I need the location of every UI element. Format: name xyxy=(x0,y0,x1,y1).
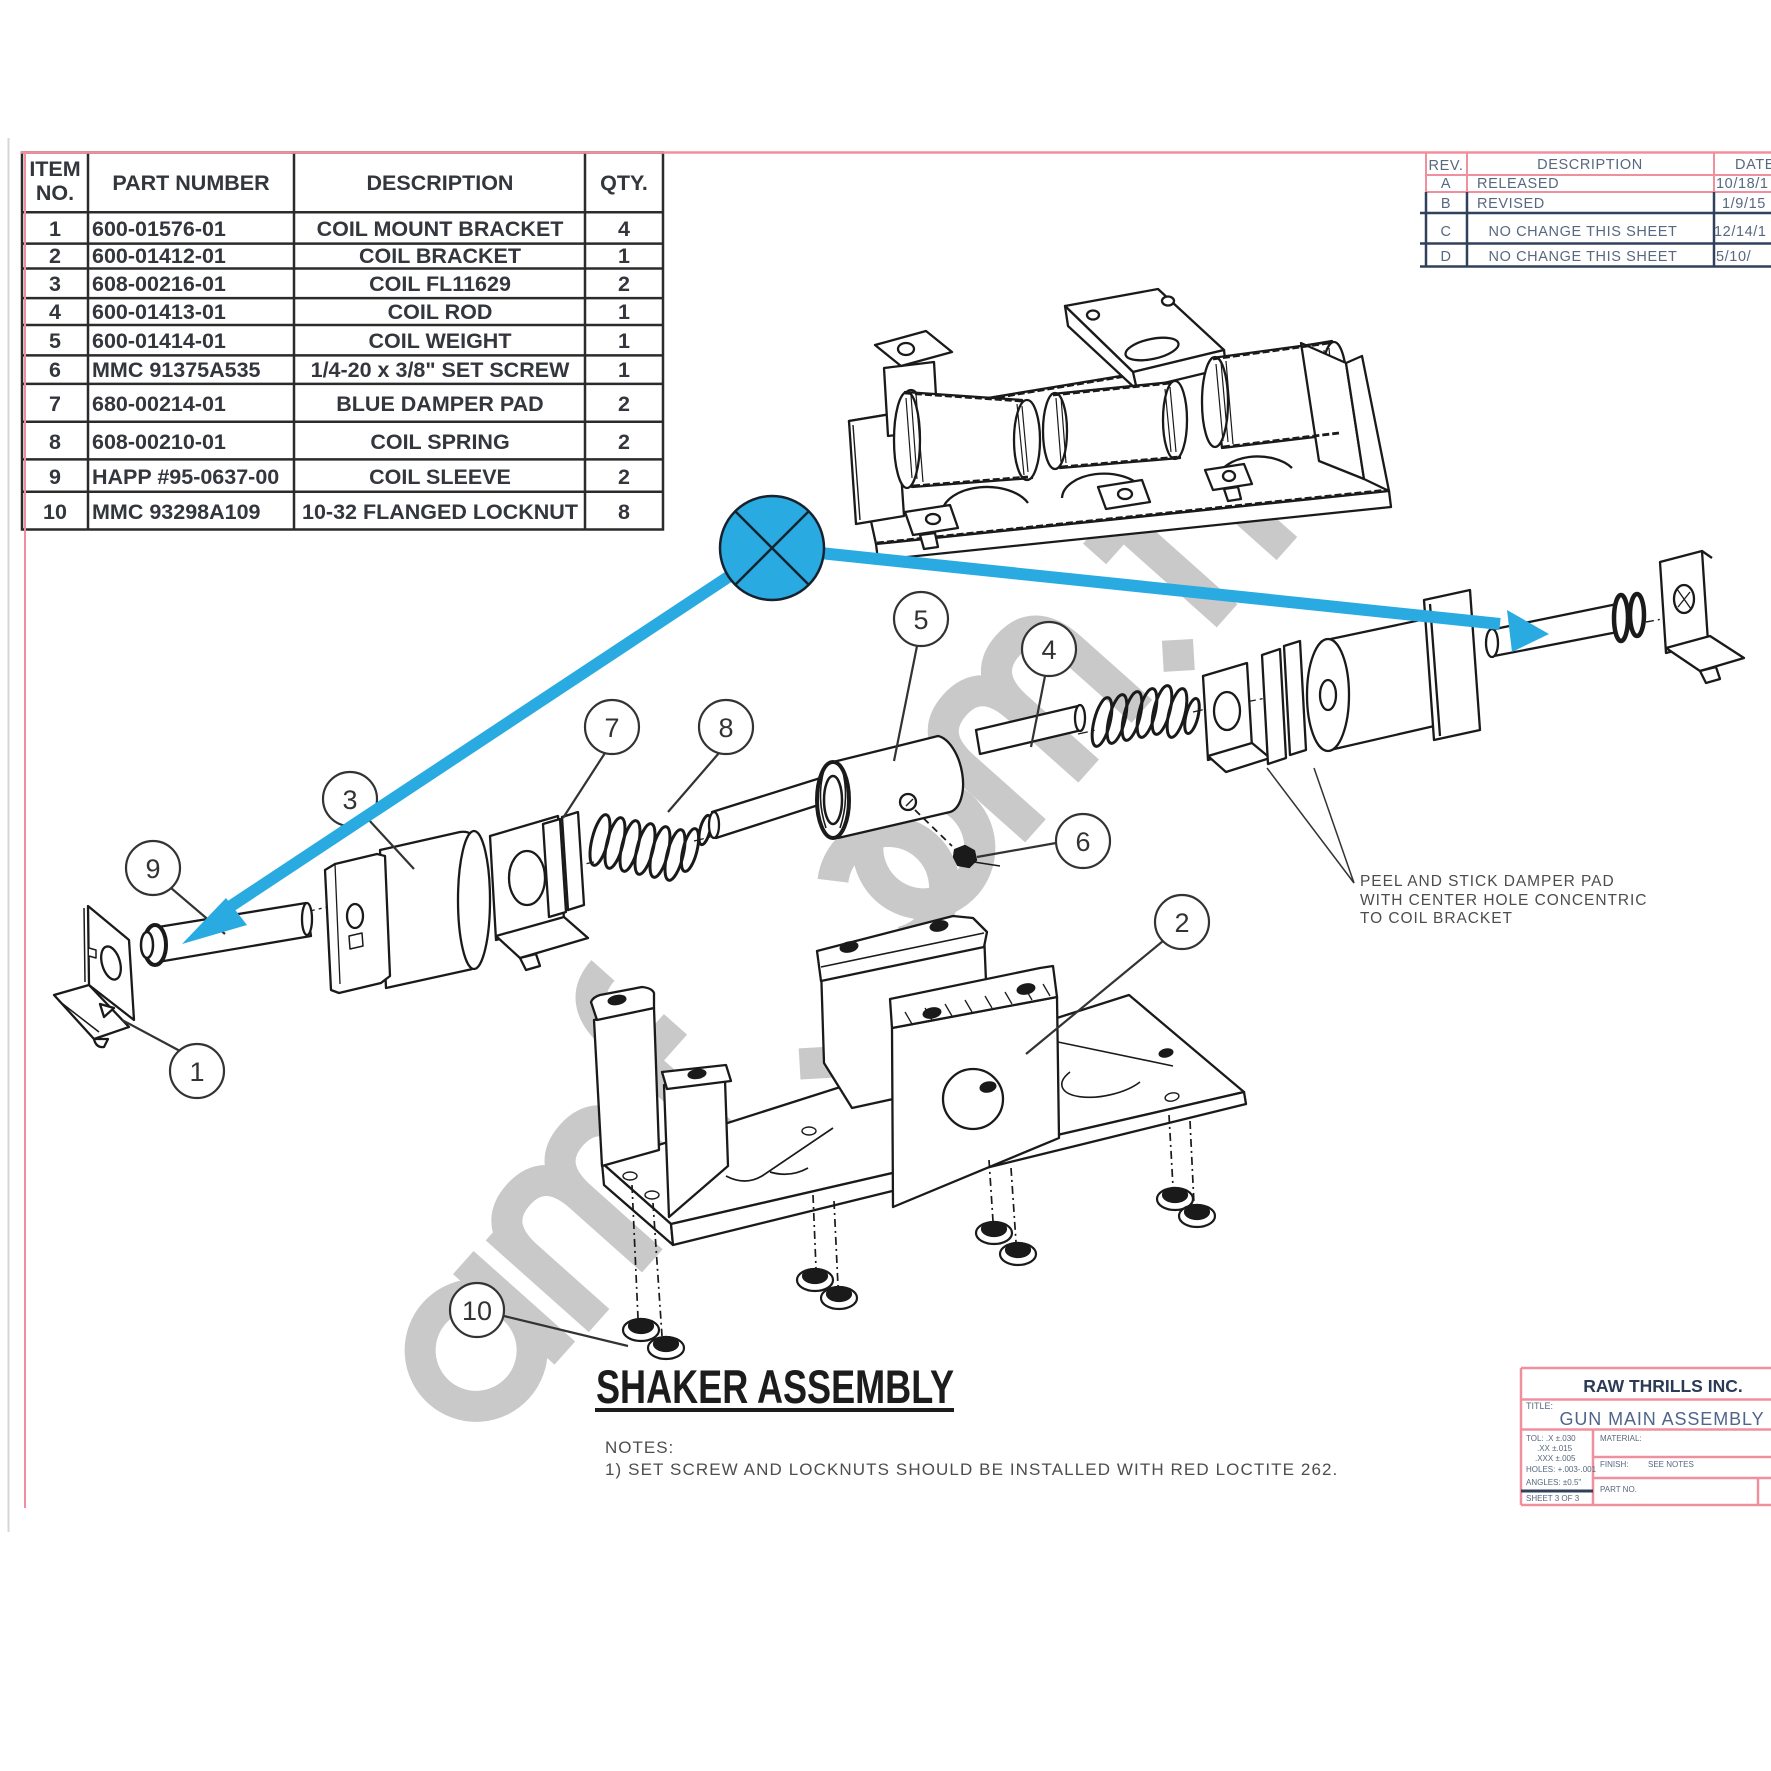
svg-text:COIL WEIGHT: COIL WEIGHT xyxy=(369,329,512,353)
svg-text:COIL ROD: COIL ROD xyxy=(388,300,493,324)
svg-text:8: 8 xyxy=(718,713,733,743)
svg-text:2: 2 xyxy=(618,430,630,454)
svg-text:608-00216-01: 608-00216-01 xyxy=(92,272,226,296)
svg-text:4: 4 xyxy=(49,300,61,324)
svg-text:RELEASED: RELEASED xyxy=(1477,176,1559,192)
svg-text:6: 6 xyxy=(1075,827,1090,857)
svg-text:600-01413-01: 600-01413-01 xyxy=(92,300,226,324)
svg-text:.XXX ±.005: .XXX ±.005 xyxy=(1535,1454,1576,1463)
svg-text:10/18/1: 10/18/1 xyxy=(1716,176,1769,192)
svg-text:HOLES: +.003-.001: HOLES: +.003-.001 xyxy=(1526,1465,1597,1474)
svg-text:2: 2 xyxy=(618,392,630,416)
svg-text:COIL SLEEVE: COIL SLEEVE xyxy=(369,465,511,489)
svg-text:MMC 93298A109: MMC 93298A109 xyxy=(92,500,261,524)
svg-text:2: 2 xyxy=(618,465,630,489)
svg-text:3: 3 xyxy=(342,785,357,815)
svg-text:SHAKER ASSEMBLY: SHAKER ASSEMBLY xyxy=(596,1360,954,1413)
svg-text:WITH CENTER HOLE CONCENTRIC: WITH CENTER HOLE CONCENTRIC xyxy=(1360,892,1647,909)
svg-text:NO CHANGE THIS SHEET: NO CHANGE THIS SHEET xyxy=(1489,224,1678,240)
svg-text:7: 7 xyxy=(49,392,61,416)
svg-text:2: 2 xyxy=(49,244,61,268)
svg-text:B: B xyxy=(1441,196,1451,212)
svg-text:4: 4 xyxy=(618,217,630,241)
svg-text:DESCRIPTION: DESCRIPTION xyxy=(1537,157,1643,173)
svg-text:5: 5 xyxy=(49,329,61,353)
svg-text:COIL SPRING: COIL SPRING xyxy=(370,430,509,454)
svg-text:5: 5 xyxy=(913,605,928,635)
svg-text:6: 6 xyxy=(49,358,61,382)
svg-text:COIL FL11629: COIL FL11629 xyxy=(369,272,511,296)
svg-text:2: 2 xyxy=(1174,908,1189,938)
svg-text:600-01412-01: 600-01412-01 xyxy=(92,244,226,268)
svg-text:NO.: NO. xyxy=(36,181,74,205)
svg-text:HAPP #95-0637-00: HAPP #95-0637-00 xyxy=(92,465,279,489)
svg-text:.XX ±.015: .XX ±.015 xyxy=(1537,1444,1573,1453)
svg-text:10: 10 xyxy=(462,1296,492,1326)
svg-text:C: C xyxy=(1440,224,1451,240)
svg-text:9: 9 xyxy=(145,854,160,884)
svg-text:7: 7 xyxy=(604,713,619,743)
svg-text:1/9/15: 1/9/15 xyxy=(1722,196,1766,212)
svg-text:10-32 FLANGED LOCKNUT: 10-32 FLANGED LOCKNUT xyxy=(302,500,578,524)
svg-text:10: 10 xyxy=(43,500,67,524)
svg-text:REV.: REV. xyxy=(1429,158,1464,174)
svg-text:3: 3 xyxy=(49,272,61,296)
svg-text:PART NO.: PART NO. xyxy=(1600,1485,1637,1494)
svg-text:A: A xyxy=(1441,176,1451,192)
svg-text:1: 1 xyxy=(618,300,630,324)
svg-text:9: 9 xyxy=(49,465,61,489)
svg-text:PEEL AND STICK DAMPER PAD: PEEL AND STICK DAMPER PAD xyxy=(1360,873,1615,890)
svg-text:ANGLES: ±0.5": ANGLES: ±0.5" xyxy=(1526,1478,1581,1487)
svg-text:1: 1 xyxy=(618,358,630,382)
svg-text:MMC 91375A535: MMC 91375A535 xyxy=(92,358,261,382)
svg-text:600-01576-01: 600-01576-01 xyxy=(92,217,226,241)
svg-text:NOTES:: NOTES: xyxy=(605,1438,674,1457)
svg-text:PART NUMBER: PART NUMBER xyxy=(112,171,270,195)
svg-text:1: 1 xyxy=(189,1057,204,1087)
svg-text:COIL BRACKET: COIL BRACKET xyxy=(359,244,521,268)
svg-text:DESCRIPTION: DESCRIPTION xyxy=(367,171,514,195)
svg-text:8: 8 xyxy=(49,430,61,454)
svg-text:RAW THRILLS INC.: RAW THRILLS INC. xyxy=(1583,1376,1742,1396)
svg-text:2: 2 xyxy=(618,272,630,296)
svg-text:600-01414-01: 600-01414-01 xyxy=(92,329,226,353)
svg-text:GUN MAIN ASSEMBLY: GUN MAIN ASSEMBLY xyxy=(1559,1409,1764,1429)
svg-text:FINISH:: FINISH: xyxy=(1600,1460,1628,1469)
svg-text:NO CHANGE THIS SHEET: NO CHANGE THIS SHEET xyxy=(1489,249,1678,265)
svg-text:680-00214-01: 680-00214-01 xyxy=(92,392,226,416)
svg-text:SHEET 3 OF 3: SHEET 3 OF 3 xyxy=(1526,1494,1580,1503)
svg-text:DATE: DATE xyxy=(1735,157,1771,173)
svg-text:1: 1 xyxy=(49,217,61,241)
svg-text:QTY.: QTY. xyxy=(600,171,648,195)
svg-text:1: 1 xyxy=(618,329,630,353)
svg-text:1: 1 xyxy=(618,244,630,268)
svg-text:MATERIAL:: MATERIAL: xyxy=(1600,1434,1642,1443)
svg-text:SEE NOTES: SEE NOTES xyxy=(1648,1460,1694,1469)
svg-text:8: 8 xyxy=(618,500,630,524)
svg-text:1) SET SCREW AND LOCKNUTS SHOU: 1) SET SCREW AND LOCKNUTS SHOULD BE INST… xyxy=(605,1460,1338,1479)
svg-text:5/10/: 5/10/ xyxy=(1716,249,1752,265)
svg-text:TITLE:: TITLE: xyxy=(1526,1401,1553,1411)
svg-text:D: D xyxy=(1440,249,1451,265)
svg-text:608-00210-01: 608-00210-01 xyxy=(92,430,226,454)
svg-text:COIL MOUNT BRACKET: COIL MOUNT BRACKET xyxy=(317,217,564,241)
svg-text:12/14/1: 12/14/1 xyxy=(1714,224,1767,240)
svg-text:BLUE DAMPER PAD: BLUE DAMPER PAD xyxy=(336,392,543,416)
svg-text:REVISED: REVISED xyxy=(1477,196,1545,212)
svg-text:1/4-20 x 3/8" SET SCREW: 1/4-20 x 3/8" SET SCREW xyxy=(311,358,570,382)
svg-text:ITEM: ITEM xyxy=(29,157,80,181)
svg-text:TOL: .X ±.030: TOL: .X ±.030 xyxy=(1526,1434,1576,1443)
svg-text:4: 4 xyxy=(1041,635,1056,665)
svg-text:TO COIL BRACKET: TO COIL BRACKET xyxy=(1360,910,1513,927)
